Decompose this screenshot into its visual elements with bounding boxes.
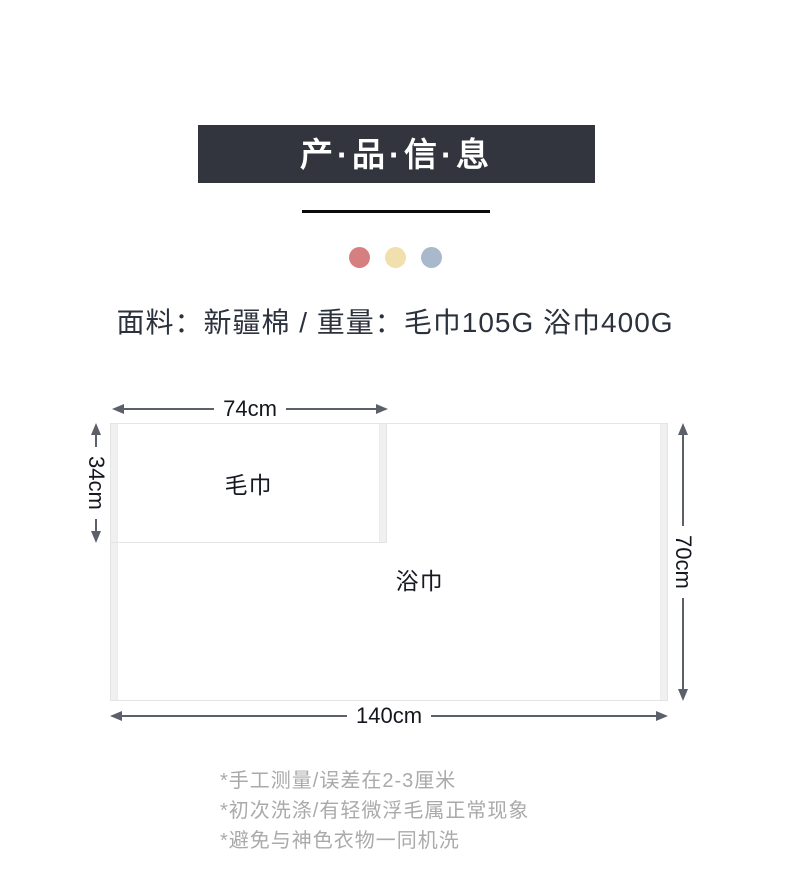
title-underline bbox=[302, 210, 490, 213]
towel-rect: 毛巾 bbox=[110, 423, 387, 543]
decor-dots-row bbox=[0, 247, 790, 268]
product-info-page: 产·品·信·息 面料：新疆棉 / 重量：毛巾105G 浴巾400G 74cm 3… bbox=[0, 0, 790, 881]
bath-towel-width-label: 140cm bbox=[356, 705, 422, 727]
arrowhead-left-icon bbox=[110, 711, 122, 721]
arrow-line bbox=[122, 715, 347, 717]
towel-label: 毛巾 bbox=[225, 466, 273, 500]
red-dot-icon bbox=[349, 247, 370, 268]
product-info-banner: 产·品·信·息 bbox=[198, 125, 595, 183]
arrow-line bbox=[95, 519, 97, 531]
arrowhead-left-icon bbox=[112, 404, 124, 414]
towel-height-arrow: 34cm bbox=[85, 423, 107, 543]
arrow-line bbox=[682, 435, 684, 526]
care-notes: *手工测量/误差在2-3厘米 *初次洗涤/有轻微浮毛属正常现象 *避免与神色衣物… bbox=[220, 766, 529, 856]
towel-height-label: 34cm bbox=[85, 456, 107, 510]
page-title: 产·品·信·息 bbox=[300, 138, 493, 171]
arrow-line bbox=[682, 598, 684, 689]
arrow-line bbox=[95, 435, 97, 447]
size-diagram: 74cm 34cm 浴巾 毛巾 70cm bbox=[0, 395, 790, 745]
note-line: *避免与神色衣物一同机洗 bbox=[220, 826, 529, 856]
towel-hem-band bbox=[379, 424, 386, 542]
towel-hem-band bbox=[111, 424, 118, 542]
blue-dot-icon bbox=[421, 247, 442, 268]
note-line: *初次洗涤/有轻微浮毛属正常现象 bbox=[220, 796, 529, 826]
arrowhead-down-icon bbox=[678, 689, 688, 701]
arrowhead-up-icon bbox=[91, 423, 101, 435]
arrow-line bbox=[431, 715, 656, 717]
arrowhead-down-icon bbox=[91, 531, 101, 543]
bath-towel-hem-band bbox=[660, 424, 667, 700]
bath-towel-label: 浴巾 bbox=[396, 562, 444, 596]
cream-dot-icon bbox=[385, 247, 406, 268]
arrowhead-right-icon bbox=[656, 711, 668, 721]
towel-width-arrow: 74cm bbox=[112, 397, 388, 421]
bath-towel-height-arrow: 70cm bbox=[672, 423, 694, 701]
bath-towel-width-arrow: 140cm bbox=[110, 704, 668, 728]
arrow-line bbox=[124, 408, 214, 410]
fabric-weight-text: 面料：新疆棉 / 重量：毛巾105G 浴巾400G bbox=[0, 301, 790, 341]
arrowhead-up-icon bbox=[678, 423, 688, 435]
note-line: *手工测量/误差在2-3厘米 bbox=[220, 766, 529, 796]
bath-towel-height-label: 70cm bbox=[672, 535, 694, 589]
arrow-line bbox=[286, 408, 376, 410]
towel-width-label: 74cm bbox=[223, 398, 277, 420]
arrowhead-right-icon bbox=[376, 404, 388, 414]
